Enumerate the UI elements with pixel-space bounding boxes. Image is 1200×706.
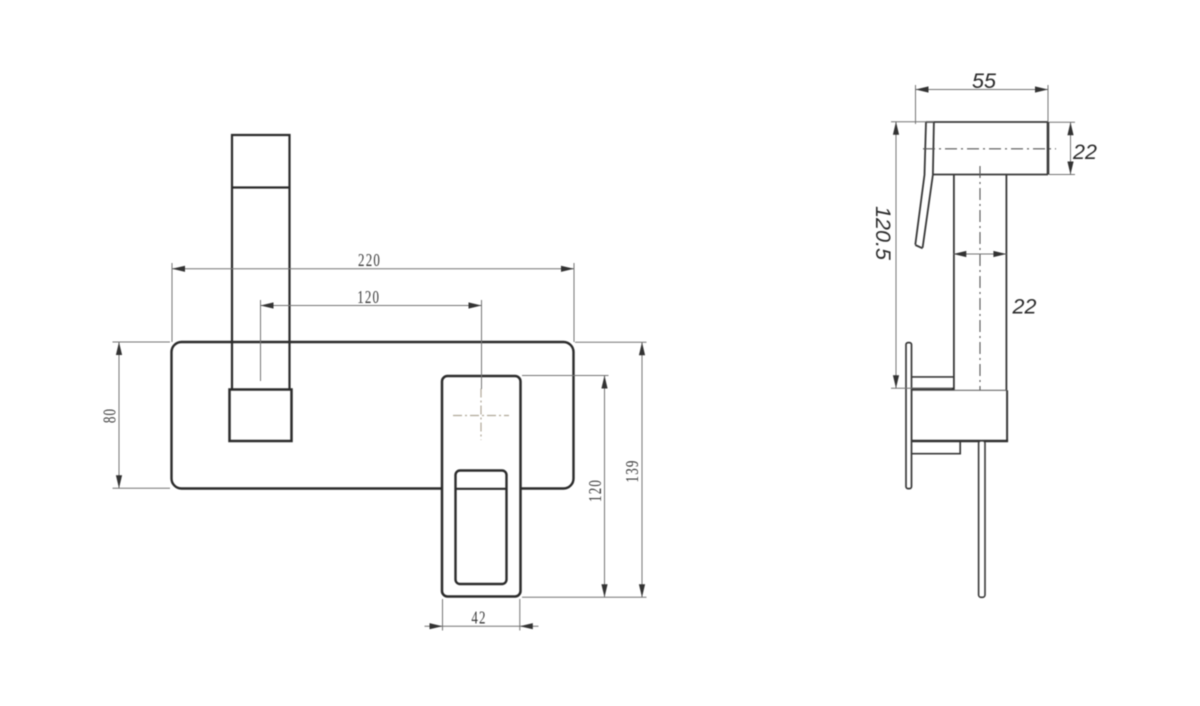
svg-text:120: 120 xyxy=(586,479,606,502)
svg-text:42: 42 xyxy=(471,608,486,628)
svg-text:220: 220 xyxy=(358,251,381,271)
svg-text:22: 22 xyxy=(1012,295,1037,319)
svg-text:139: 139 xyxy=(623,460,643,483)
svg-text:22: 22 xyxy=(1072,140,1097,164)
svg-text:120.5: 120.5 xyxy=(871,206,895,261)
svg-text:120: 120 xyxy=(357,288,380,308)
svg-text:80: 80 xyxy=(101,408,121,423)
svg-text:55: 55 xyxy=(972,69,997,93)
